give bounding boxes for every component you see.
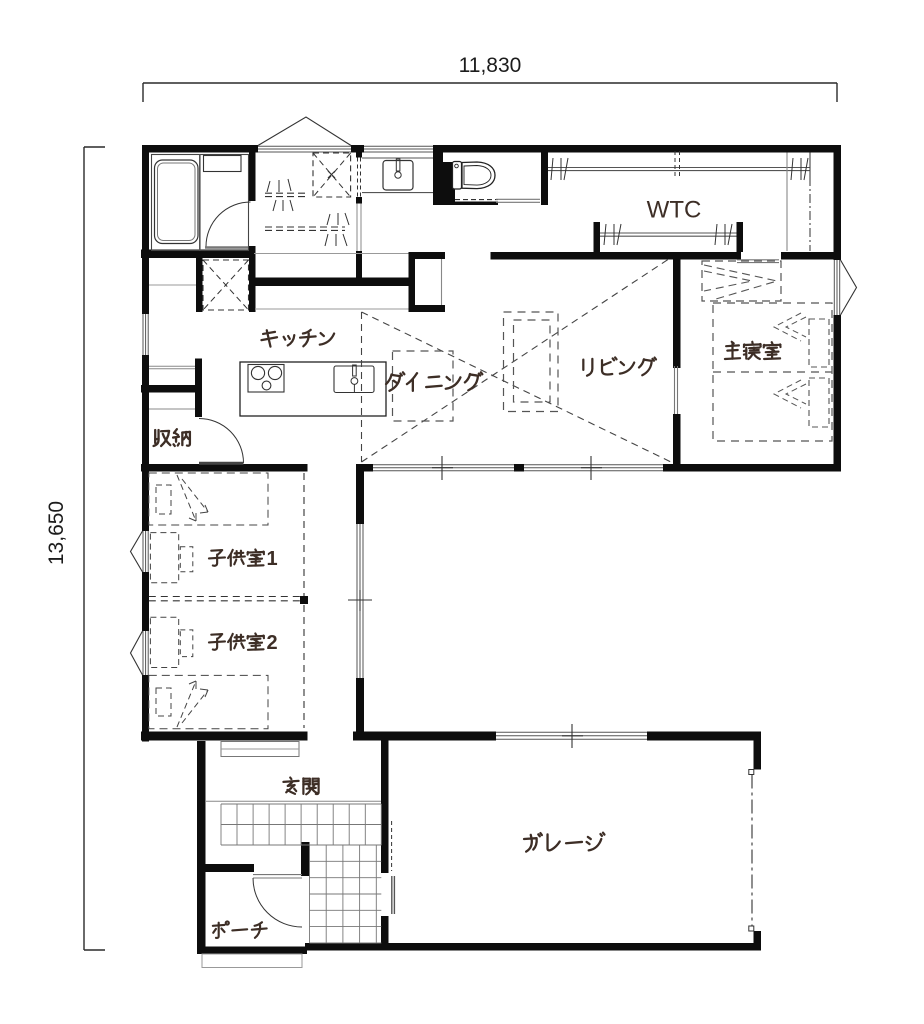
svg-text:WTC: WTC <box>647 197 702 224</box>
svg-text:1: 1 <box>266 548 277 570</box>
svg-text:11,830: 11,830 <box>459 54 522 77</box>
svg-text:2: 2 <box>266 632 277 654</box>
svg-text:13,650: 13,650 <box>45 501 68 565</box>
